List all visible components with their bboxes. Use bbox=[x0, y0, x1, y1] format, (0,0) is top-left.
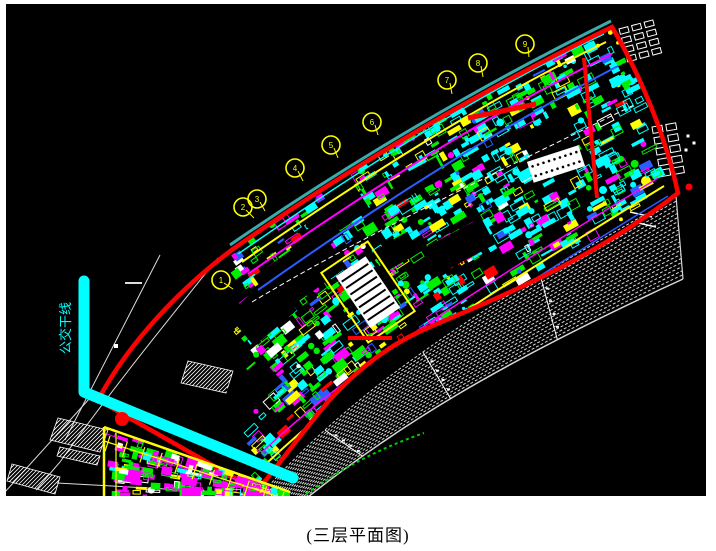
cad-drawing: 公交干线123456789 bbox=[6, 4, 706, 496]
figure-caption: (三层平面图) bbox=[0, 521, 716, 546]
svg-text:1: 1 bbox=[219, 276, 224, 285]
svg-text:8: 8 bbox=[476, 59, 481, 68]
red-marker-dot bbox=[115, 412, 129, 426]
construction-node bbox=[114, 344, 118, 348]
floor-plan-canvas: 公交干线123456789 bbox=[6, 4, 706, 496]
document-page: { "caption": "(三层平面图)", "annotation": { … bbox=[0, 0, 716, 551]
red-marker-small bbox=[686, 184, 693, 191]
svg-text:3: 3 bbox=[255, 195, 260, 204]
svg-text:5: 5 bbox=[329, 141, 334, 150]
svg-text:2: 2 bbox=[241, 203, 246, 212]
svg-text:7: 7 bbox=[445, 76, 450, 85]
svg-text:9: 9 bbox=[523, 40, 528, 49]
svg-text:6: 6 bbox=[370, 118, 375, 127]
svg-text:4: 4 bbox=[293, 164, 298, 173]
transit-line-label: 公交干线 bbox=[58, 302, 73, 354]
